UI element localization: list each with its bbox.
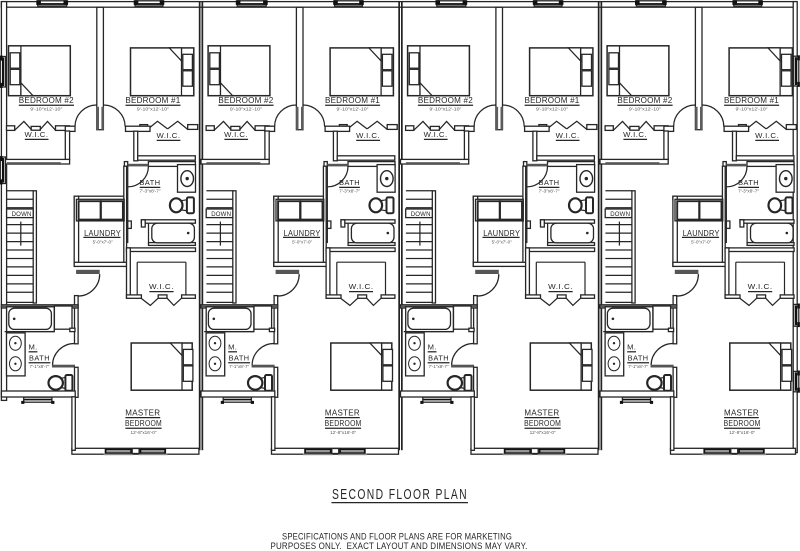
svg-text:BATH: BATH: [140, 178, 161, 187]
svg-text:7′-1″x8′-7″: 7′-1″x8′-7″: [429, 364, 449, 369]
svg-text:W.I.C.: W.I.C.: [149, 282, 174, 291]
svg-text:BEDROOM #1: BEDROOM #1: [325, 95, 380, 105]
svg-text:7′-3″x8′-7″: 7′-3″x8′-7″: [738, 189, 759, 194]
svg-text:W.I.C.: W.I.C.: [224, 130, 248, 139]
svg-text:W.I.C.: W.I.C.: [157, 131, 181, 140]
svg-text:BEDROOM #2: BEDROOM #2: [617, 95, 672, 105]
svg-text:M.: M.: [627, 342, 636, 351]
svg-text:MASTER: MASTER: [325, 407, 360, 417]
svg-text:BATH: BATH: [628, 353, 649, 362]
svg-text:BEDROOM #2: BEDROOM #2: [19, 95, 74, 105]
svg-text:MASTER: MASTER: [125, 407, 160, 417]
svg-text:BATH: BATH: [339, 178, 360, 187]
svg-text:DOWN: DOWN: [610, 211, 630, 218]
svg-text:12′-8″x16′-0″: 12′-8″x16′-0″: [131, 430, 157, 435]
svg-text:MASTER: MASTER: [524, 407, 559, 417]
svg-text:M.: M.: [228, 342, 237, 351]
svg-text:BEDROOM: BEDROOM: [724, 418, 761, 428]
svg-text:9′-10″x12′-10″: 9′-10″x12′-10″: [736, 107, 768, 112]
svg-text:9′-10″x12′-10″: 9′-10″x12′-10″: [30, 107, 62, 112]
svg-text:MASTER: MASTER: [724, 407, 759, 417]
svg-text:M.: M.: [28, 342, 37, 351]
svg-text:BEDROOM #1: BEDROOM #1: [724, 95, 779, 105]
svg-text:9′-10″x12′-10″: 9′-10″x12′-10″: [230, 107, 262, 112]
svg-text:12′-8″x16′-0″: 12′-8″x16′-0″: [330, 430, 356, 435]
svg-text:9′-10″x12′-10″: 9′-10″x12′-10″: [536, 107, 568, 112]
svg-text:W.I.C.: W.I.C.: [424, 130, 448, 139]
svg-text:DOWN: DOWN: [12, 211, 32, 218]
svg-text:BATH: BATH: [428, 353, 449, 362]
svg-text:SPECIFICATIONS AND FLOOR PLANS: SPECIFICATIONS AND FLOOR PLANS ARE FOR M…: [282, 531, 512, 541]
svg-text:BEDROOM #2: BEDROOM #2: [418, 95, 473, 105]
svg-text:5′-0″x7′-0″: 5′-0″x7′-0″: [93, 240, 113, 245]
svg-text:BATH: BATH: [539, 178, 560, 187]
svg-text:W.I.C.: W.I.C.: [356, 131, 380, 140]
svg-text:DOWN: DOWN: [411, 211, 431, 218]
svg-text:7′-3″x8′-7″: 7′-3″x8′-7″: [539, 189, 560, 194]
svg-text:PURPOSES ONLY. EXACT LAYOUT A: PURPOSES ONLY. EXACT LAYOUT AND DIMENSIO…: [271, 541, 528, 551]
svg-text:7′-1″x8′-7″: 7′-1″x8′-7″: [628, 364, 648, 369]
svg-text:W.I.C.: W.I.C.: [755, 131, 779, 140]
svg-text:5′-0″x7′-0″: 5′-0″x7′-0″: [691, 240, 711, 245]
svg-text:5′-0″x7′-0″: 5′-0″x7′-0″: [292, 240, 312, 245]
svg-text:7′-3″x8′-7″: 7′-3″x8′-7″: [339, 189, 360, 194]
svg-text:W.I.C.: W.I.C.: [548, 282, 573, 291]
svg-text:BEDROOM #1: BEDROOM #1: [125, 95, 180, 105]
svg-text:W.I.C.: W.I.C.: [748, 282, 773, 291]
svg-text:BEDROOM #1: BEDROOM #1: [525, 95, 580, 105]
svg-text:5′-0″x7′-0″: 5′-0″x7′-0″: [492, 240, 512, 245]
svg-text:9′-10″x12′-10″: 9′-10″x12′-10″: [629, 107, 661, 112]
svg-text:W.I.C.: W.I.C.: [556, 131, 580, 140]
svg-text:7′-1″x8′-7″: 7′-1″x8′-7″: [30, 364, 50, 369]
svg-text:9′-10″x12′-10″: 9′-10″x12′-10″: [337, 107, 369, 112]
svg-text:M.: M.: [428, 342, 437, 351]
svg-text:W.I.C.: W.I.C.: [25, 130, 49, 139]
svg-text:W.I.C.: W.I.C.: [349, 282, 374, 291]
svg-text:BEDROOM: BEDROOM: [325, 418, 362, 428]
svg-text:9′-10″x12′-10″: 9′-10″x12′-10″: [137, 107, 169, 112]
svg-text:BATH: BATH: [229, 353, 250, 362]
svg-text:BATH: BATH: [738, 178, 759, 187]
svg-text:9′-10″x12′-10″: 9′-10″x12′-10″: [429, 107, 461, 112]
svg-text:BEDROOM: BEDROOM: [125, 418, 162, 428]
svg-text:7′-1″x8′-7″: 7′-1″x8′-7″: [229, 364, 249, 369]
svg-text:SECOND FLOOR PLAN: SECOND FLOOR PLAN: [332, 486, 468, 503]
svg-text:W.I.C.: W.I.C.: [623, 130, 647, 139]
svg-text:BEDROOM #2: BEDROOM #2: [218, 95, 273, 105]
svg-text:12′-8″x16′-0″: 12′-8″x16′-0″: [530, 430, 556, 435]
svg-text:BATH: BATH: [29, 353, 50, 362]
svg-text:DOWN: DOWN: [211, 211, 231, 218]
svg-text:12′-8″x16′-0″: 12′-8″x16′-0″: [729, 430, 755, 435]
svg-text:7′-3″x8′-7″: 7′-3″x8′-7″: [140, 189, 161, 194]
svg-text:BEDROOM: BEDROOM: [524, 418, 561, 428]
